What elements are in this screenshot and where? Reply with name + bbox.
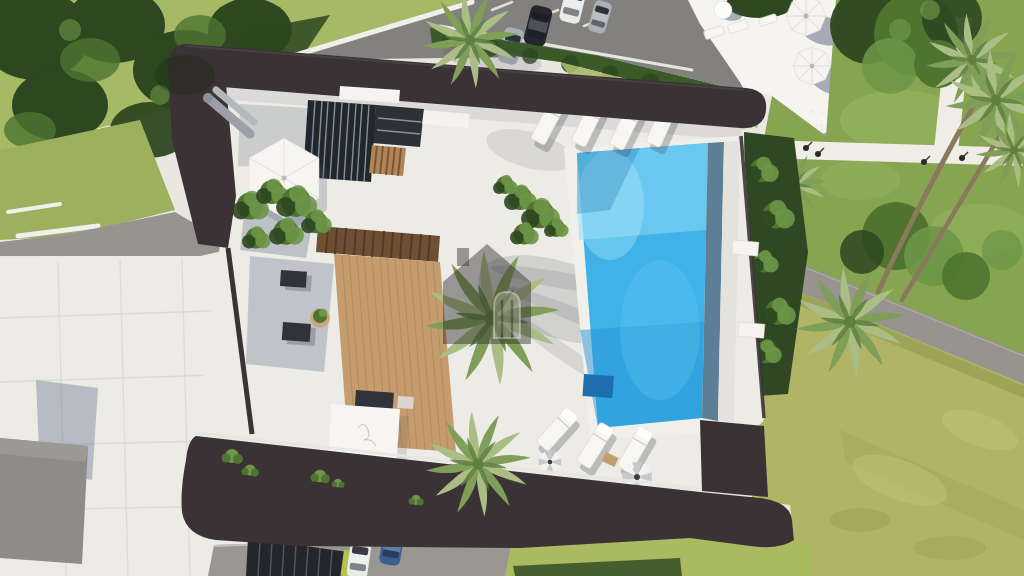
roof-corner-block (700, 420, 768, 497)
fence-post (732, 240, 759, 256)
bench (282, 322, 311, 342)
swimming-pool (564, 136, 740, 440)
bench (280, 270, 307, 288)
aerial-villa-render (0, 0, 1024, 576)
terrace-dome (714, 1, 732, 19)
open-parasol (793, 47, 831, 85)
counter (397, 396, 414, 409)
pool-step-mat (582, 374, 613, 398)
fence-post (738, 322, 765, 338)
